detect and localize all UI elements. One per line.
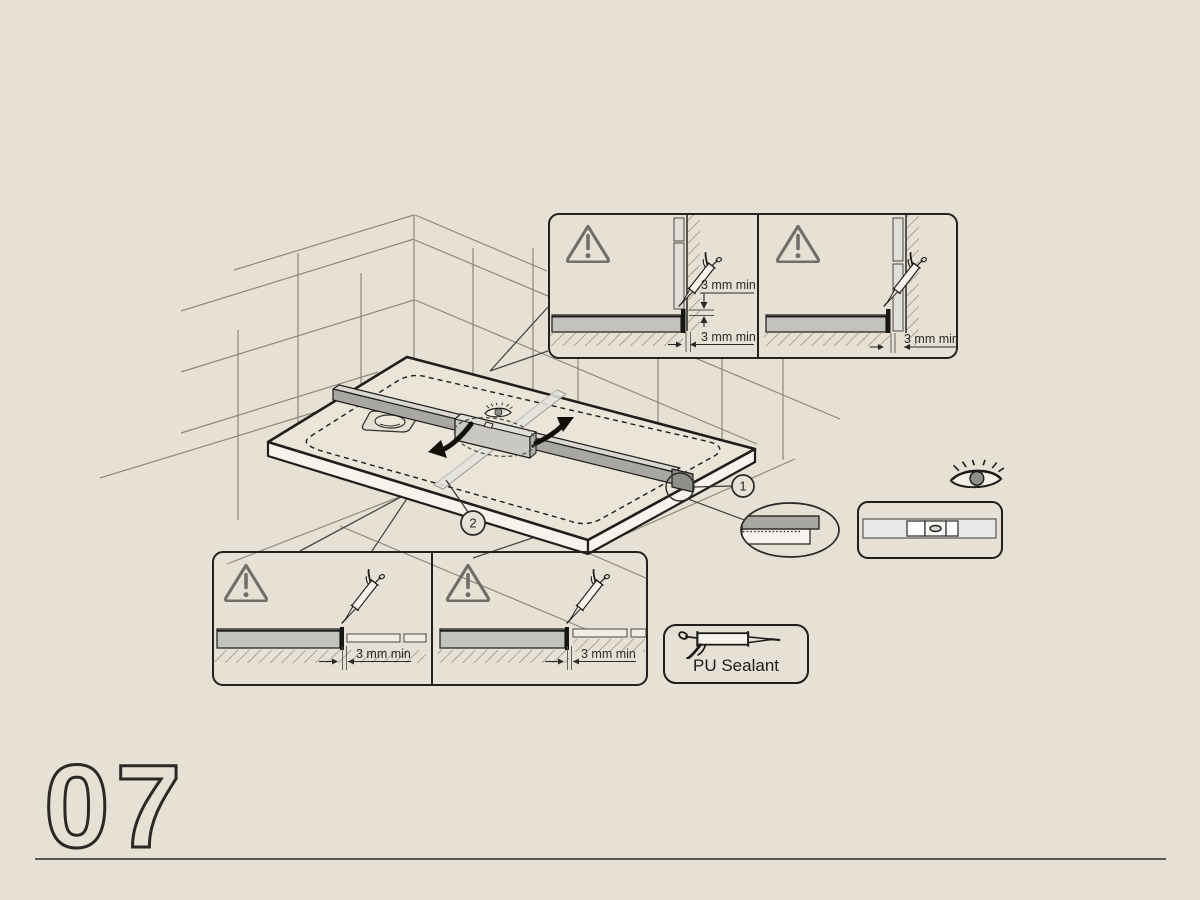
dim-label: 3 mm min bbox=[904, 332, 956, 346]
wall-joint-panels-drawing: 3 mm min 3 mm min bbox=[550, 215, 956, 357]
wall-hatch bbox=[688, 215, 700, 331]
wall-tile bbox=[893, 218, 903, 261]
spirit-level-icon bbox=[859, 503, 1000, 556]
dim-label: 3 mm min bbox=[701, 278, 756, 292]
floor-joint-panels-drawing: 3 mm min 3 mm min bbox=[214, 553, 646, 684]
floor-hatch bbox=[550, 333, 683, 346]
dim-label: 3 mm min bbox=[581, 647, 636, 661]
callout-1-number: 1 bbox=[739, 479, 746, 494]
wall-joint-detail-panels: 3 mm min 3 mm min bbox=[548, 213, 958, 359]
tray-section bbox=[766, 315, 886, 332]
warning-triangle-icon bbox=[777, 226, 818, 262]
sealant-bead bbox=[340, 627, 344, 650]
wall-tile bbox=[674, 218, 684, 241]
tray-section bbox=[217, 629, 340, 648]
tray-section bbox=[440, 629, 565, 648]
panel-wall-joint-left: 3 mm min 3 mm min bbox=[550, 215, 756, 352]
floor-tile bbox=[347, 634, 400, 642]
tray-section bbox=[552, 315, 681, 332]
callout-2-number: 2 bbox=[469, 516, 476, 531]
floor-tile bbox=[404, 634, 426, 642]
panel-floor-joint-right: 3 mm min bbox=[438, 565, 646, 670]
dim-label: 3 mm min bbox=[701, 330, 756, 344]
sealant-bead bbox=[886, 309, 891, 333]
warning-triangle-icon bbox=[447, 565, 488, 601]
dim-label: 3 mm min bbox=[356, 647, 411, 661]
wall-tile bbox=[893, 264, 903, 331]
wall-tile bbox=[674, 243, 684, 309]
pu-sealant-label: PU Sealant bbox=[693, 657, 779, 674]
instruction-page: { "step": { "number": "07" }, "dimension… bbox=[0, 0, 1200, 900]
panel-floor-joint-left: 3 mm min bbox=[215, 565, 426, 670]
floor-hatch bbox=[764, 333, 890, 346]
warning-triangle-icon bbox=[567, 226, 608, 262]
sealant-bead bbox=[565, 627, 569, 650]
floor-tile bbox=[573, 629, 627, 637]
spirit-level-detail-box bbox=[857, 501, 1003, 559]
floor-tile bbox=[631, 629, 646, 637]
detail-ellipse bbox=[688, 499, 839, 557]
warning-triangle-icon bbox=[225, 565, 266, 601]
sealant-bead bbox=[681, 309, 686, 333]
step-number: 07 bbox=[44, 741, 187, 873]
pu-sealant-legend: PU Sealant bbox=[663, 624, 809, 684]
caulking-gun-icon bbox=[557, 566, 610, 627]
caulking-gun-icon bbox=[666, 626, 806, 659]
panel-wall-joint-right: 3 mm min bbox=[764, 215, 956, 353]
eye-icon-large bbox=[951, 460, 1004, 487]
bubble-vial-icon bbox=[930, 526, 941, 532]
floor-joint-detail-panels: 3 mm min 3 mm min bbox=[212, 551, 648, 686]
caulking-gun-icon bbox=[332, 566, 385, 627]
main-illustration: 2 1 07 bbox=[0, 0, 1200, 900]
